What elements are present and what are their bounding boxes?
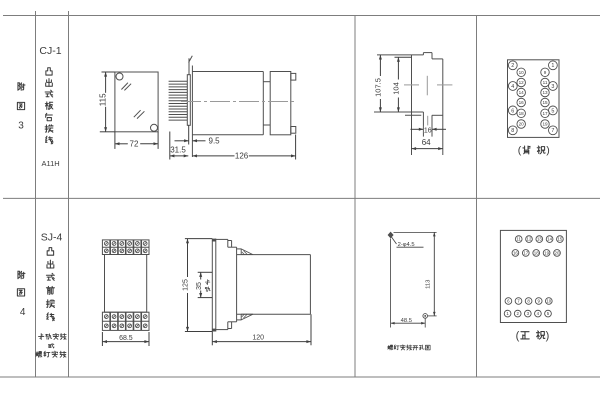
svg-text:10: 10 [519,70,525,75]
svg-text:113: 113 [425,280,431,289]
svg-text:A11H: A11H [41,159,59,168]
svg-text:): ) [546,330,550,342]
svg-text:68.5: 68.5 [119,335,133,342]
svg-text:7: 7 [517,299,520,304]
svg-text:107.5: 107.5 [374,78,383,97]
svg-text:9.5: 9.5 [209,137,221,146]
svg-text:3: 3 [551,84,554,90]
svg-text:13: 13 [537,237,542,242]
svg-text:15: 15 [542,100,548,105]
svg-text:SJ-4: SJ-4 [41,231,63,243]
svg-text:(: ( [516,330,520,342]
svg-text:19: 19 [542,122,548,127]
svg-text:5: 5 [551,108,554,114]
svg-text:CJ-1: CJ-1 [39,45,61,57]
svg-text:125: 125 [183,279,190,291]
svg-text:12: 12 [519,80,525,85]
svg-text:17: 17 [523,250,528,255]
svg-text:18: 18 [534,250,539,255]
svg-text:(: ( [518,145,522,157]
svg-text:18: 18 [519,111,525,116]
svg-text:10: 10 [546,299,551,304]
svg-text:20: 20 [555,250,560,255]
svg-text:6: 6 [507,299,510,304]
svg-text:16: 16 [424,127,432,134]
svg-text:13: 13 [542,90,548,95]
svg-text:3: 3 [527,311,530,316]
svg-text:126: 126 [235,152,249,161]
svg-text:1: 1 [506,311,509,316]
svg-text:48.5: 48.5 [401,318,412,324]
svg-text:12: 12 [527,237,532,242]
svg-text:120: 120 [252,334,264,341]
svg-text:115: 115 [99,93,108,106]
svg-text:2-φ4.5: 2-φ4.5 [398,242,415,248]
svg-text:7: 7 [551,128,554,134]
svg-text:2: 2 [511,63,514,69]
svg-text:9: 9 [537,299,540,304]
svg-text:1: 1 [551,63,554,69]
svg-text:104: 104 [392,82,401,95]
svg-text:11: 11 [516,237,521,242]
svg-text:6: 6 [511,108,514,114]
svg-text:2: 2 [516,311,519,316]
svg-text:11: 11 [543,80,548,85]
svg-text:5: 5 [547,311,550,316]
svg-text:): ) [546,145,550,157]
svg-text:17: 17 [542,111,548,116]
svg-text:15: 15 [557,237,562,242]
svg-text:9: 9 [544,70,547,75]
svg-text:16: 16 [513,250,518,255]
svg-text:20: 20 [519,122,525,127]
svg-text:4: 4 [511,84,514,90]
svg-text:4: 4 [20,307,26,318]
svg-text:72: 72 [130,140,139,149]
svg-text:8: 8 [511,128,514,134]
svg-text:35: 35 [196,282,203,290]
svg-text:4: 4 [537,311,540,316]
svg-text:8: 8 [527,299,530,304]
svg-text:16: 16 [519,100,525,105]
svg-text:14: 14 [547,237,552,242]
svg-text:14: 14 [519,90,525,95]
svg-text:31.5: 31.5 [170,145,186,154]
svg-text:64: 64 [422,138,431,147]
svg-text:3: 3 [18,121,24,132]
svg-text:19: 19 [544,250,549,255]
